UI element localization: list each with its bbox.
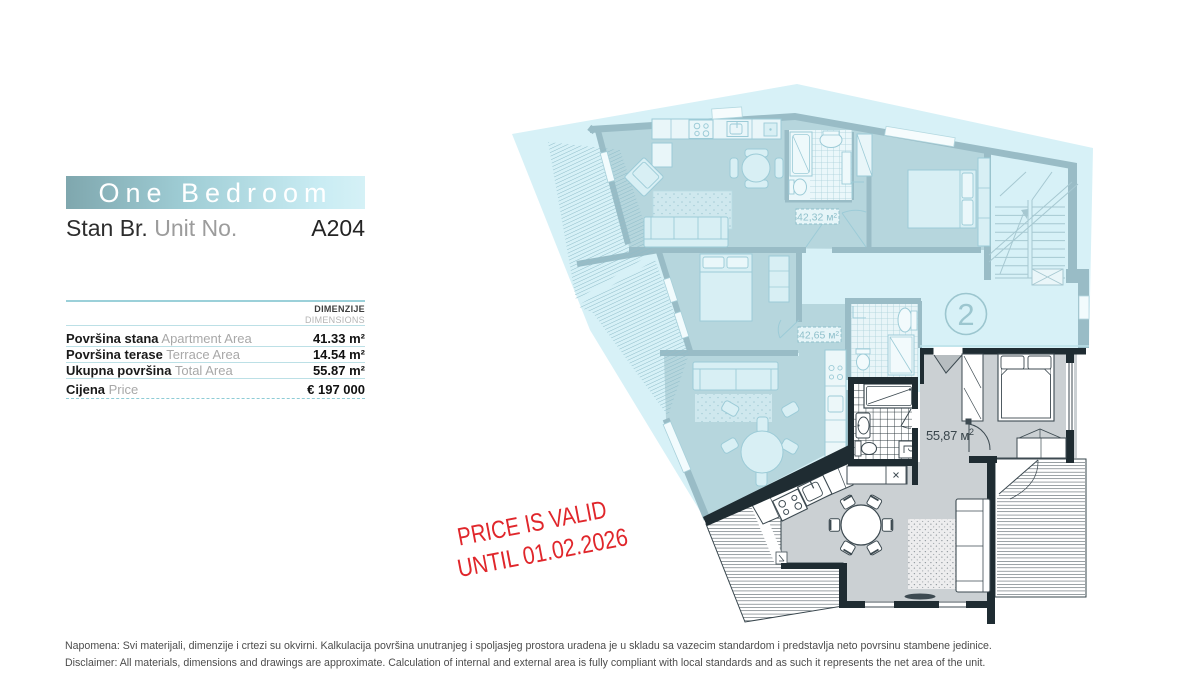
- svg-text:42,65 м²: 42,65 м²: [799, 330, 839, 342]
- svg-text:42,32 м²: 42,32 м²: [797, 212, 837, 224]
- svg-text:55,87 м2: 55,87 м2: [926, 427, 974, 443]
- svg-text:2: 2: [957, 297, 974, 332]
